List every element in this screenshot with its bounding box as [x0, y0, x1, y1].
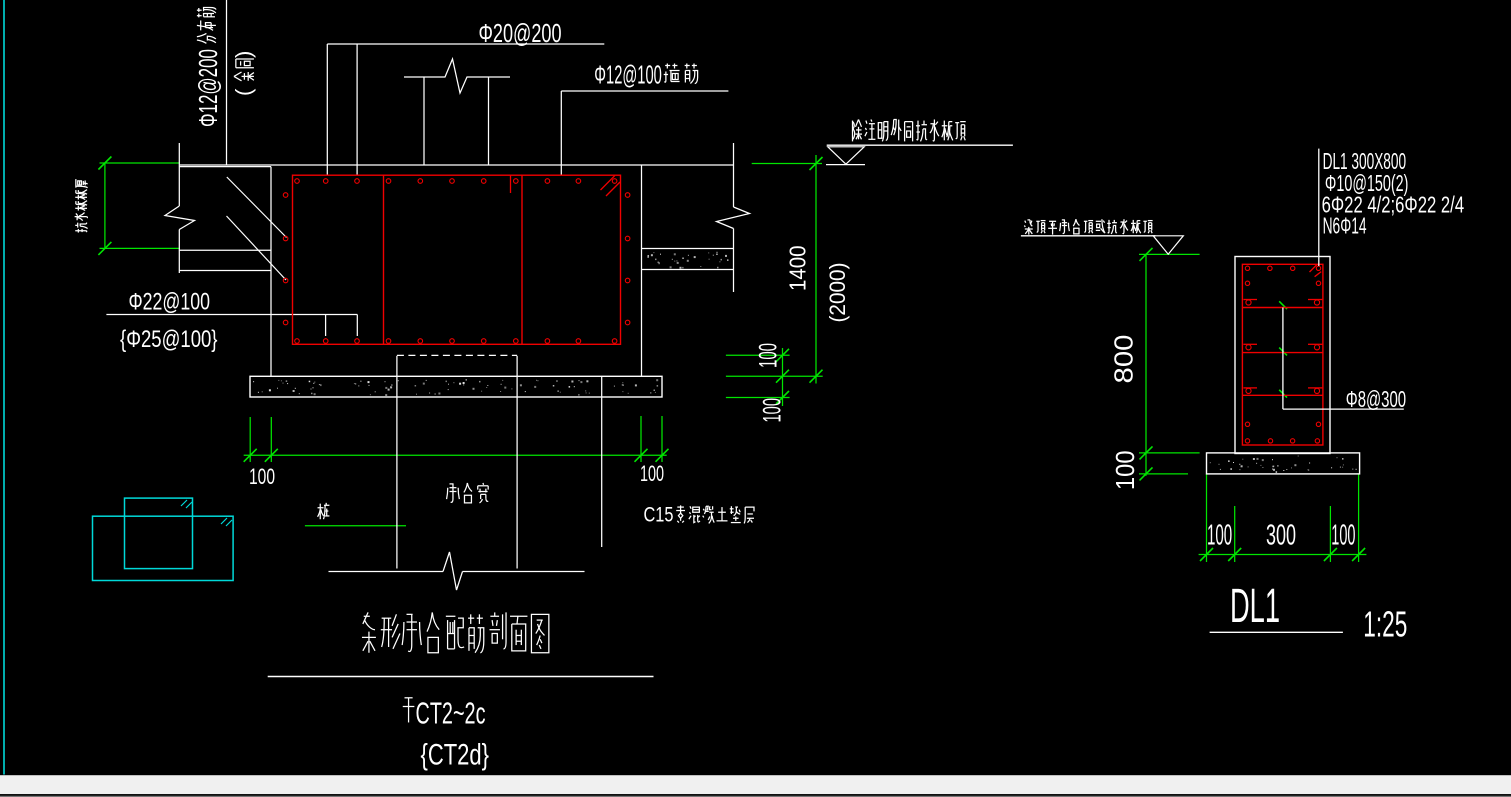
- svg-text:Φ20@200: Φ20@200: [479, 18, 562, 48]
- svg-text:{Φ25@100}: {Φ25@100}: [120, 326, 218, 353]
- svg-text:800: 800: [1109, 335, 1139, 384]
- svg-text:100: 100: [640, 461, 664, 486]
- svg-text:1:25: 1:25: [1363, 604, 1407, 645]
- svg-text:(2000): (2000): [825, 263, 850, 323]
- svg-text:N6Φ14: N6Φ14: [1323, 213, 1367, 239]
- svg-text:{CT2d}: {CT2d}: [421, 739, 490, 772]
- svg-text:1400: 1400: [785, 246, 811, 292]
- svg-text:(: (: [231, 88, 256, 96]
- svg-text:Φ12@100: Φ12@100: [594, 60, 662, 90]
- svg-text:CT2~2c: CT2~2c: [416, 696, 486, 731]
- svg-text:Φ8@300: Φ8@300: [1346, 386, 1406, 412]
- svg-text:100: 100: [759, 398, 787, 423]
- svg-text:100: 100: [1331, 520, 1355, 552]
- svg-text:100: 100: [755, 343, 783, 368]
- svg-text:100: 100: [1207, 520, 1232, 552]
- svg-text:300: 300: [1266, 520, 1296, 552]
- svg-text:DL1: DL1: [1230, 580, 1280, 633]
- svg-text:Φ12@200: Φ12@200: [193, 49, 223, 127]
- svg-text:100: 100: [1110, 451, 1140, 491]
- svg-text:Φ22@100: Φ22@100: [129, 289, 211, 316]
- svg-text:100: 100: [249, 464, 275, 489]
- svg-text:C15: C15: [644, 504, 674, 527]
- svg-text:): ): [231, 51, 256, 58]
